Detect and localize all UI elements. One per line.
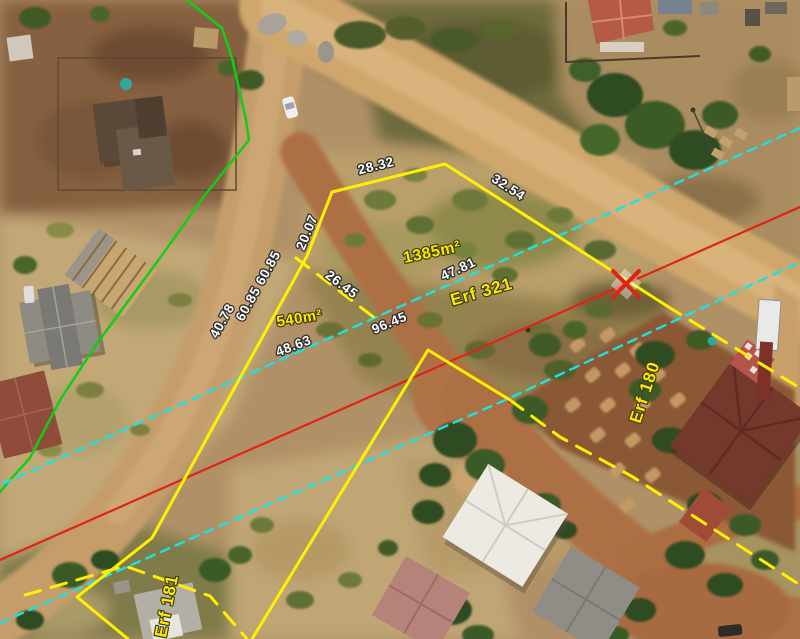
shed-right-edge — [787, 77, 800, 111]
survey-beacon-marker — [611, 269, 642, 300]
structure — [745, 9, 760, 26]
roof-bluegray — [658, 0, 692, 14]
shed — [6, 34, 33, 61]
structure — [700, 2, 718, 15]
car-white-small — [23, 286, 34, 304]
water-tank — [120, 78, 132, 90]
umbrella — [708, 337, 717, 346]
aerial-map-canvas: 28.32 32.54 20.07 26.45 47.81 60.85 60.8… — [0, 0, 800, 639]
shed — [193, 27, 219, 49]
structure — [765, 2, 787, 14]
aerial-cadastral-view: 28.32 32.54 20.07 26.45 47.81 60.85 60.8… — [0, 0, 800, 639]
